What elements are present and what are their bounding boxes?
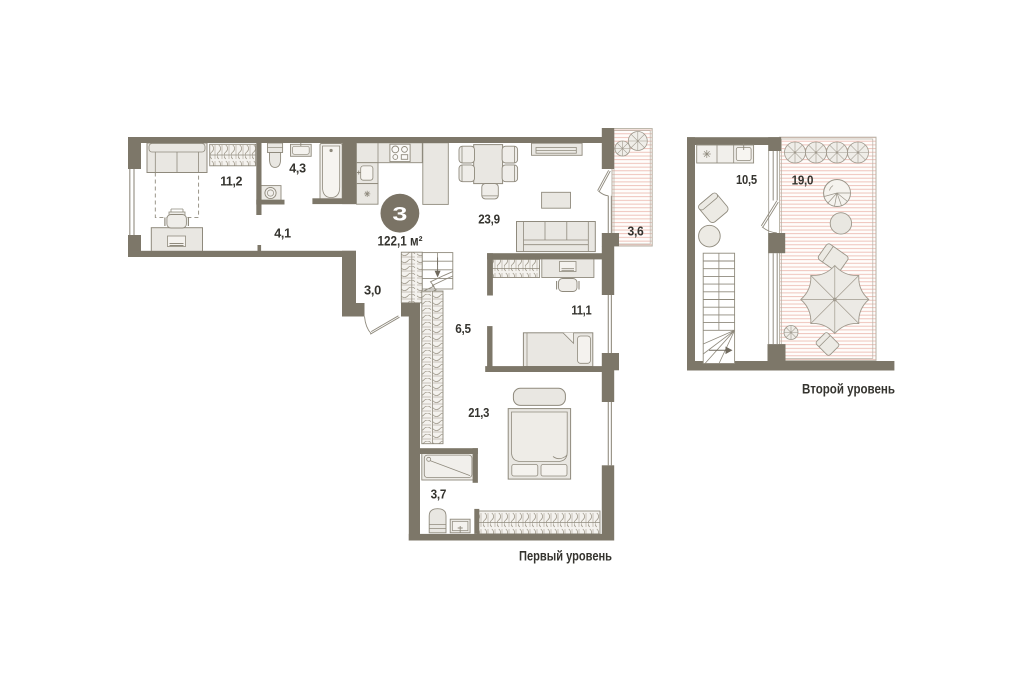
svg-text:3,6: 3,6	[628, 224, 644, 239]
svg-text:Второй уровень: Второй уровень	[802, 381, 895, 396]
svg-text:3,7: 3,7	[431, 487, 447, 502]
svg-text:23,9: 23,9	[478, 211, 500, 226]
svg-text:Первый уровень: Первый уровень	[519, 548, 612, 563]
svg-text:11,2: 11,2	[220, 173, 242, 188]
svg-text:122,1 м²: 122,1 м²	[378, 234, 423, 249]
svg-text:3,0: 3,0	[364, 282, 381, 297]
svg-text:4,1: 4,1	[274, 226, 291, 241]
svg-text:10,5: 10,5	[736, 172, 757, 187]
svg-text:21,3: 21,3	[468, 405, 489, 420]
svg-text:3: 3	[392, 204, 407, 226]
svg-text:19,0: 19,0	[792, 172, 814, 187]
svg-text:6,5: 6,5	[455, 321, 471, 336]
svg-text:11,1: 11,1	[571, 303, 591, 318]
svg-text:4,3: 4,3	[289, 160, 306, 175]
